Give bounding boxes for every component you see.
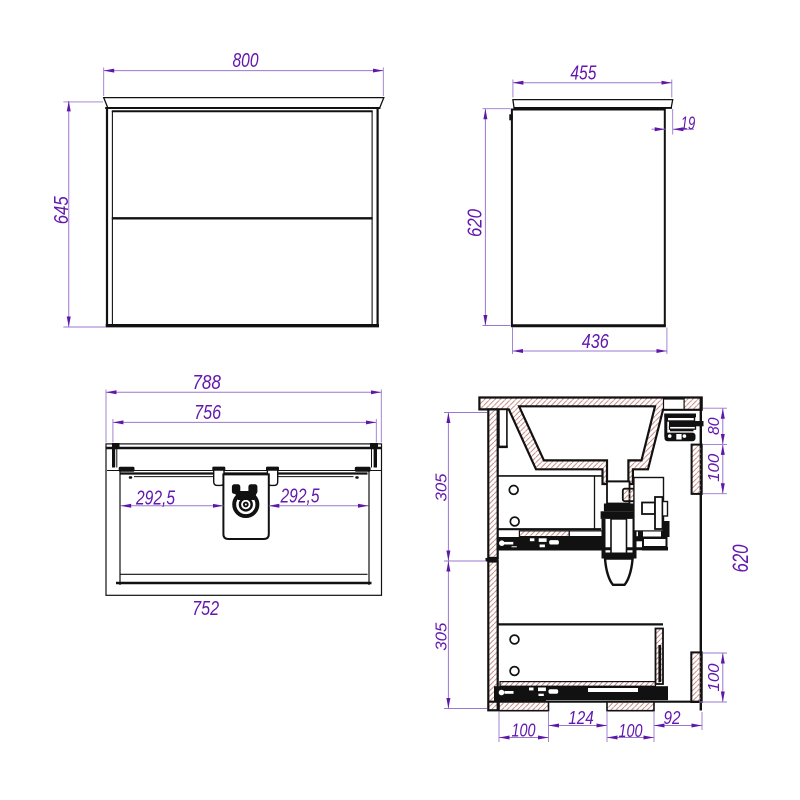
svg-text:100: 100 bbox=[706, 663, 723, 691]
svg-text:292,5: 292,5 bbox=[135, 488, 175, 510]
svg-text:436: 436 bbox=[582, 331, 610, 353]
svg-text:80: 80 bbox=[706, 417, 723, 435]
svg-text:100: 100 bbox=[619, 721, 643, 741]
svg-text:124: 124 bbox=[568, 708, 594, 728]
svg-text:100: 100 bbox=[512, 720, 536, 740]
svg-text:800: 800 bbox=[233, 50, 259, 72]
svg-text:620: 620 bbox=[728, 544, 753, 573]
svg-text:455: 455 bbox=[570, 63, 597, 85]
svg-text:100: 100 bbox=[706, 454, 723, 482]
svg-text:620: 620 bbox=[465, 209, 487, 237]
svg-text:92: 92 bbox=[664, 708, 681, 728]
svg-text:756: 756 bbox=[194, 402, 222, 424]
svg-text:788: 788 bbox=[192, 372, 221, 394]
svg-text:19: 19 bbox=[681, 113, 696, 133]
svg-text:645: 645 bbox=[51, 196, 73, 225]
svg-text:305: 305 bbox=[433, 623, 450, 651]
svg-text:292,5: 292,5 bbox=[280, 486, 320, 508]
svg-text:305: 305 bbox=[433, 473, 450, 501]
svg-text:752: 752 bbox=[192, 598, 219, 620]
